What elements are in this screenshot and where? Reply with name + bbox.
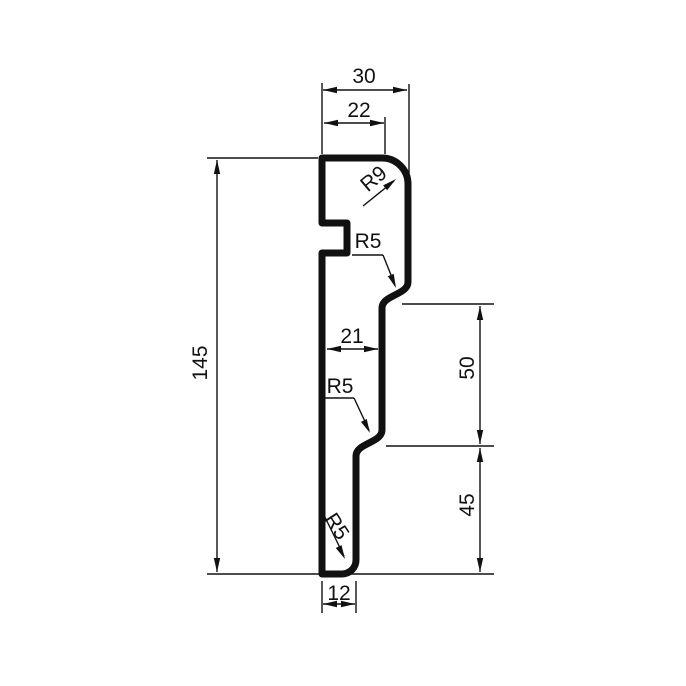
- arrowhead-left-icon: [327, 346, 341, 352]
- arrowhead-left-icon: [323, 87, 337, 93]
- arrowhead-downright-icon: [361, 419, 373, 434]
- callout-radius-upper-step: R5: [352, 230, 399, 289]
- dim-middle-width: 21: [327, 325, 378, 352]
- dim-lower-step-height: 45: [456, 448, 483, 572]
- arrowhead-left-icon: [324, 120, 338, 126]
- arrowhead-up-icon: [477, 306, 483, 320]
- dim-label-upper-step: 50: [456, 356, 479, 379]
- arrowhead-downright-icon: [388, 274, 399, 289]
- dim-label-lower-step: 45: [456, 493, 479, 516]
- dim-bottom-width: 12: [322, 581, 356, 613]
- arrowhead-down-icon: [214, 558, 220, 572]
- radius-label-lower-step: R5: [327, 375, 354, 398]
- arrowhead-right-icon: [370, 120, 384, 126]
- dim-label-middle-width: 21: [340, 325, 363, 348]
- callout-radius-lower-step: R5: [325, 375, 373, 434]
- arrowhead-down-icon: [477, 430, 483, 444]
- radius-label-top-corner: R9: [356, 162, 391, 197]
- dim-top-flat-width: 22: [324, 99, 385, 154]
- dim-label-top-width: 30: [352, 65, 375, 88]
- dim-label-bottom-width: 12: [327, 582, 350, 605]
- arrowhead-up-icon: [214, 160, 220, 174]
- arrowhead-down-icon: [477, 558, 483, 572]
- dim-upper-step-height: 50: [386, 304, 494, 446]
- callout-radius-top-corner: R9: [356, 162, 398, 206]
- arrowhead-right-icon: [393, 87, 407, 93]
- dim-label-top-flat-width: 22: [347, 99, 370, 122]
- arrowhead-up-icon: [477, 448, 483, 462]
- radius-label-upper-step: R5: [355, 230, 382, 253]
- technical-drawing-page: 145 30 22 21: [0, 0, 686, 686]
- profile-technical-drawing: 145 30 22 21: [0, 0, 686, 686]
- arrowhead-right-icon: [364, 346, 378, 352]
- dim-label-total-height: 145: [189, 345, 212, 380]
- arrowhead-downright-icon: [336, 545, 348, 560]
